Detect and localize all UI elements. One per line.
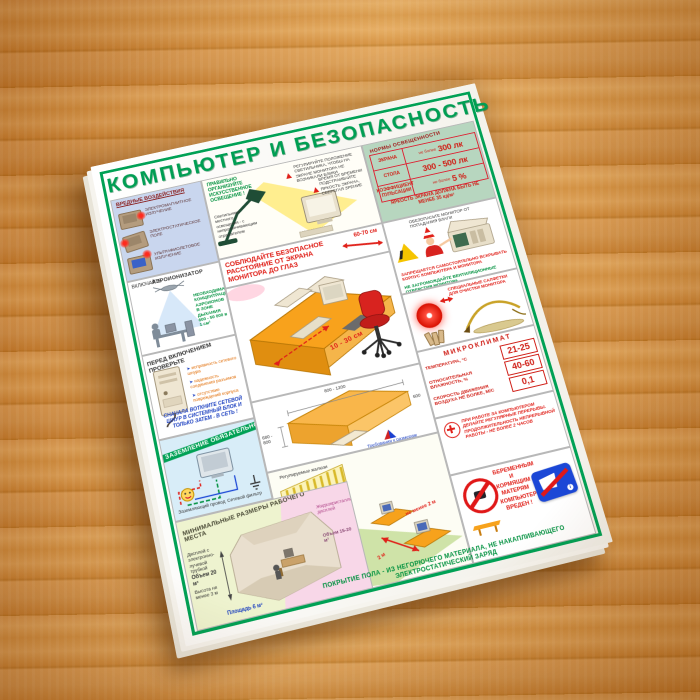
warning-triangle-icon: [393, 241, 418, 263]
prohibition-bar: [469, 480, 491, 510]
blue-info-sign-icon: i: [530, 462, 580, 504]
eye-distance-value: 60-70 см: [353, 228, 378, 240]
cd-disc-icon: [414, 301, 446, 331]
ionizer-note: НЕОБХОДИМАЯ КОНЦЕНТРАЦИЯ АЭРОИОНОВ В ЗОН…: [193, 286, 231, 327]
poster: КОМПЬЮТЕР И БЕЗОПАСНОСТЬ ВРЕДНЫЕ ВОЗДЕЙС…: [91, 83, 613, 646]
lcd-display-label: Жидкокристаллический дисплей: [316, 497, 351, 516]
norms-qualifier: не более: [432, 177, 451, 185]
norms-value: 300 лк: [437, 139, 464, 153]
norms-value: 5 %: [451, 171, 467, 183]
brush-icon: [438, 330, 445, 344]
distance-arrow: [343, 242, 382, 247]
mini-desk-icon: [472, 516, 502, 537]
cleaning-arrow: [440, 298, 452, 302]
norms-qualifier: не более: [418, 147, 437, 155]
medical-cross-icon: [442, 420, 462, 439]
wood-table-background: КОМПЬЮТЕР И БЕЗОПАСНОСТЬ ВРЕДНЫЕ ВОЗДЕЙС…: [0, 0, 700, 700]
info-dot-glyph: i: [566, 483, 574, 491]
